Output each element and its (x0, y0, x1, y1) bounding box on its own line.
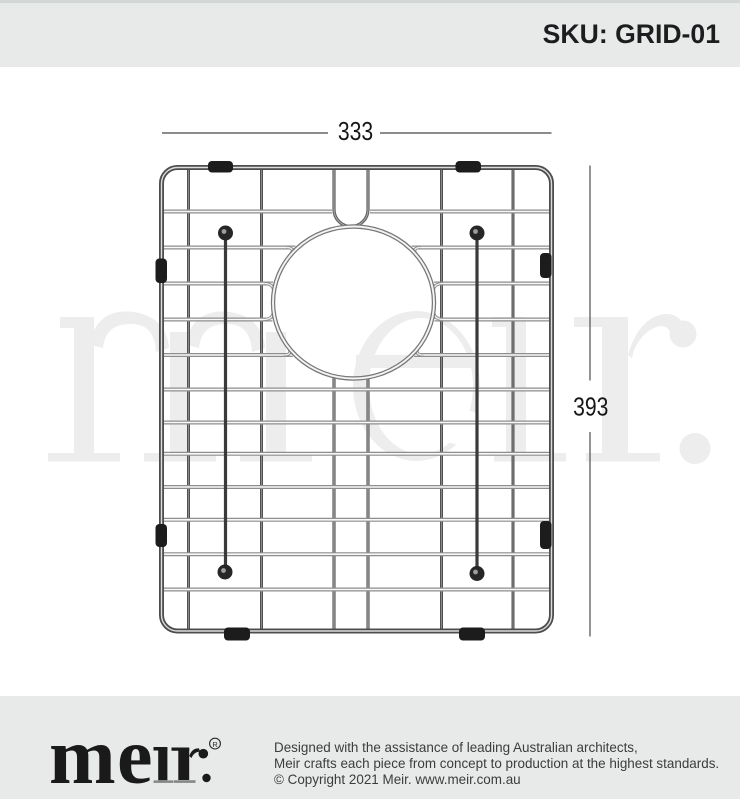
svg-text:m: m (49, 713, 116, 799)
svg-text:393: 393 (573, 392, 608, 420)
svg-text:R: R (212, 740, 217, 749)
svg-text:e: e (117, 713, 153, 799)
svg-text:333: 333 (338, 117, 373, 145)
